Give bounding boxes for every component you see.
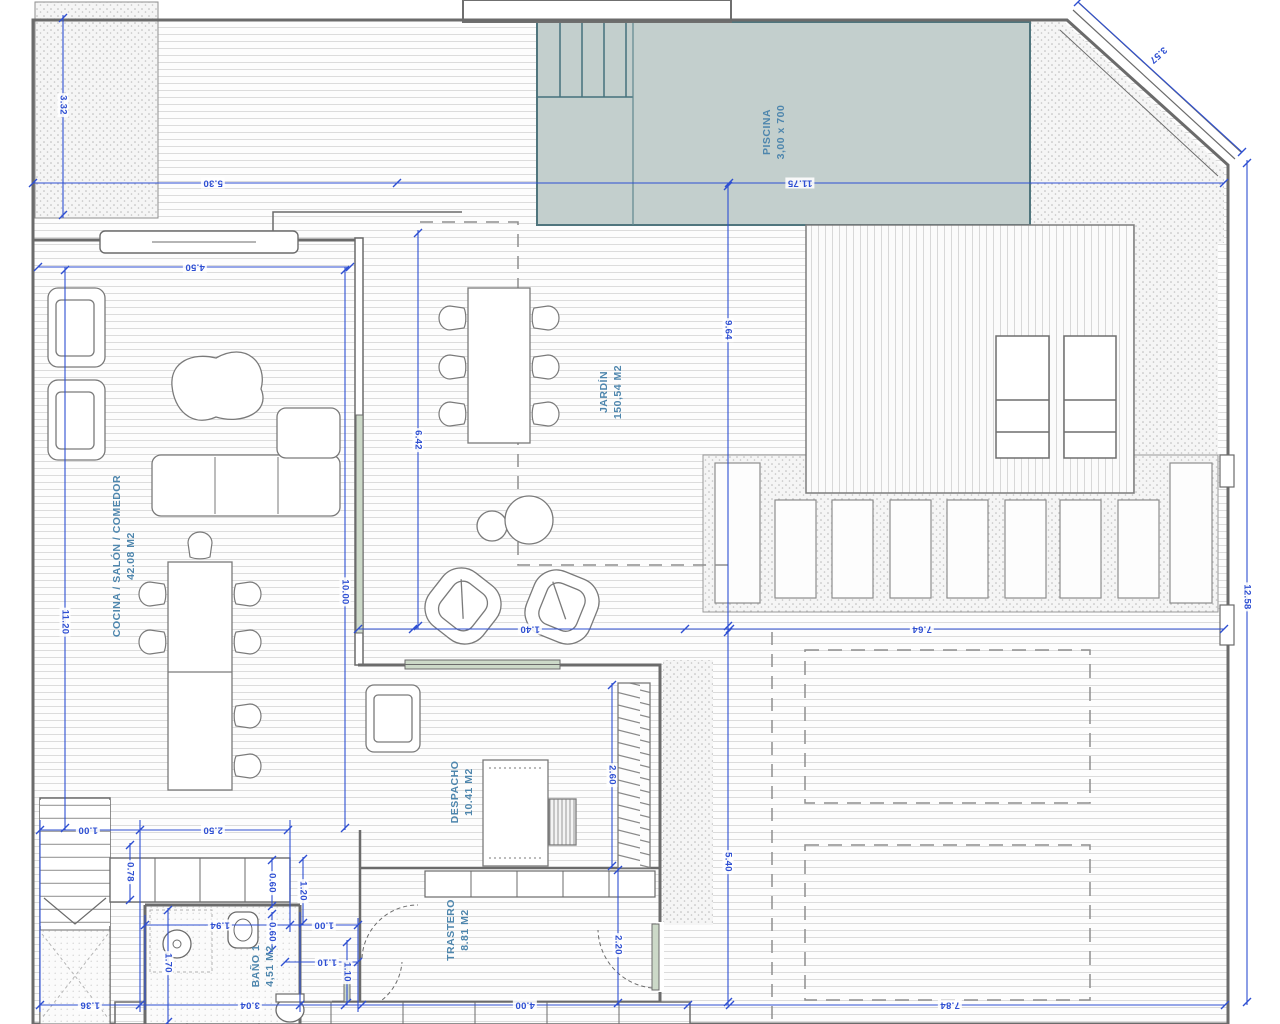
dim-label-11-20: 11.20 (60, 608, 71, 637)
dim-label-10-00: 10.00 (340, 577, 351, 606)
floorplan-svg (0, 0, 1280, 1024)
dim-label-1-10a: 1.10 (315, 957, 339, 968)
dim-label-1-00a: 1.00 (76, 825, 100, 836)
dim-label-5-30: 5.30 (201, 178, 225, 189)
room-name: TRASTERO (444, 899, 458, 961)
dim-label-5-40: 5.40 (723, 850, 734, 874)
sofa (152, 455, 340, 516)
side-path-gravel (663, 660, 713, 925)
dim-label-0-60a: 0.60 (267, 871, 278, 895)
dim-label-0-78: 0.78 (125, 860, 136, 884)
room-label-piscina: PISCINA 3,00 x 700 (760, 105, 788, 160)
room-area: 4,51 M2 (263, 945, 277, 988)
side-table (477, 511, 507, 541)
dim-label-1-94: 1.94 (208, 920, 232, 931)
dim-label-1-70: 1.70 (163, 951, 174, 975)
room-label-despacho: DESPACHO 10.41 M2 (448, 761, 476, 824)
room-area: 150,54 M2 (611, 365, 625, 419)
room-label-cocina: COCINA / SALÓN / COMEDOR 42.08 M2 (110, 475, 138, 637)
sliding-door-living (356, 415, 363, 633)
room-area: 8.81 M2 (458, 899, 472, 961)
dim-label-1-10b: 1.10 (342, 960, 353, 984)
room-name: BAÑO 1 (249, 945, 263, 988)
dim-label-3-04: 3.04 (238, 1000, 262, 1011)
corner-gravel (1030, 22, 1224, 243)
door-trastero-east (652, 924, 659, 990)
dim-label-0-60b: 0.60 (267, 920, 278, 944)
side-gravel (1134, 243, 1218, 458)
room-label-trastero: TRASTERO 8.81 M2 (444, 899, 472, 961)
room-area: 3,00 x 700 (774, 105, 788, 160)
room-name: JARDÍN (597, 365, 611, 419)
dim-label-4-00: 4.00 (513, 1000, 537, 1011)
dim-label-3-32: 3.32 (58, 93, 69, 117)
dim-label-6-42: 6.42 (413, 428, 424, 452)
dim-label-1-36: 1.36 (78, 1000, 102, 1011)
room-area: 10.41 M2 (462, 761, 476, 824)
side-table (505, 496, 553, 544)
deck (806, 225, 1134, 493)
dim-label-1-40: 1.40 (518, 624, 542, 635)
dim-label-7-64: 7.64 (910, 624, 934, 635)
room-area: 42.08 M2 (124, 475, 138, 637)
room-name: PISCINA (760, 105, 774, 160)
ladder-stair (618, 683, 650, 868)
dim-label-12-58: 12.58 (1242, 582, 1253, 611)
dim-label-1-20: 1.20 (298, 879, 309, 903)
shelving (425, 871, 655, 897)
dining-table (168, 562, 232, 790)
washbasin (228, 912, 258, 948)
dim-label-7-84: 7.84 (938, 1000, 962, 1011)
floor-plan: PISCINA 3,00 x 700 JARDÍN 150,54 M2 COCI… (0, 0, 1280, 1024)
garden-table (468, 288, 530, 443)
room-label-jardin: JARDÍN 150,54 M2 (597, 365, 625, 419)
dim-label-9-64: 9.64 (723, 318, 734, 342)
room-name: COCINA / SALÓN / COMEDOR (110, 475, 124, 637)
room-label-bano: BAÑO 1 4,51 M2 (249, 945, 277, 988)
dim-label-2-60: 2.60 (607, 763, 618, 787)
dim-label-11-75: 11.75 (786, 178, 815, 189)
desk (483, 760, 548, 866)
rug (172, 352, 263, 420)
office-chair (549, 799, 576, 845)
dim-label-2-50: 2.50 (201, 825, 225, 836)
dim-label-1-00b: 1.00 (312, 920, 336, 931)
dim-label-2-20: 2.20 (613, 933, 624, 957)
room-name: DESPACHO (448, 761, 462, 824)
dim-label-4-50: 4.50 (183, 262, 207, 273)
terrace-gravel (35, 2, 158, 218)
